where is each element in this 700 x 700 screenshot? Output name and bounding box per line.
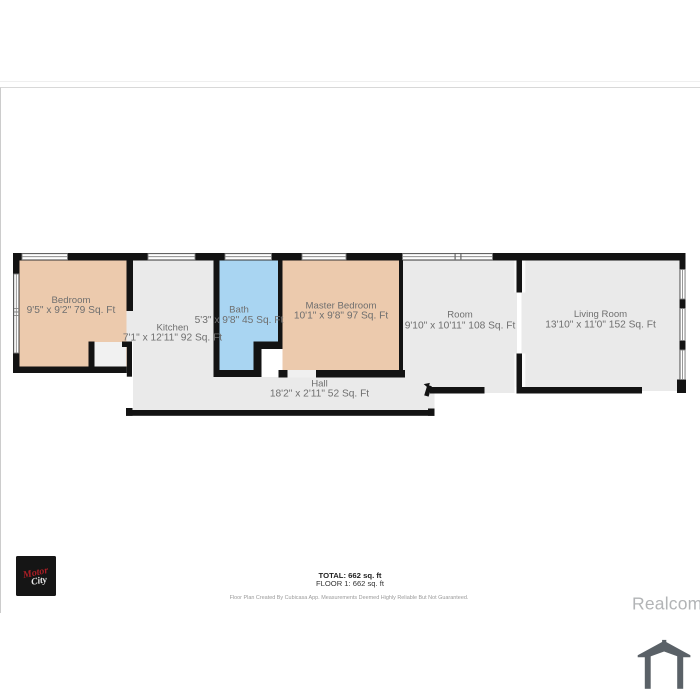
svg-text:7'1" x 12'11" 92 Sq. Ft: 7'1" x 12'11" 92 Sq. Ft <box>123 333 222 344</box>
svg-text:10'1" x 9'8" 97 Sq. Ft: 10'1" x 9'8" 97 Sq. Ft <box>294 311 389 322</box>
svg-text:18'2" x 2'11" 52 Sq. Ft: 18'2" x 2'11" 52 Sq. Ft <box>270 388 369 399</box>
svg-text:FLOOR 1: 662 sq. ft: FLOOR 1: 662 sq. ft <box>316 579 385 588</box>
svg-text:Bath: Bath <box>229 305 249 316</box>
svg-text:Bedroom: Bedroom <box>52 295 91 306</box>
svg-text:Room: Room <box>447 309 473 320</box>
svg-text:Living Room: Living Room <box>574 309 627 320</box>
svg-text:Floor Plan Created By Cubicasa: Floor Plan Created By Cubicasa App. Meas… <box>230 595 469 601</box>
svg-text:Realcomp: Realcomp <box>632 594 700 614</box>
svg-text:13'10" x 11'0" 152 Sq. Ft: 13'10" x 11'0" 152 Sq. Ft <box>545 320 656 331</box>
svg-text:5'3" x 9'8" 45 Sq. Ft: 5'3" x 9'8" 45 Sq. Ft <box>195 315 284 326</box>
svg-text:9'5" x 9'2" 79 Sq. Ft: 9'5" x 9'2" 79 Sq. Ft <box>27 305 116 316</box>
svg-text:9'10" x 10'11" 108 Sq. Ft: 9'10" x 10'11" 108 Sq. Ft <box>405 320 516 331</box>
